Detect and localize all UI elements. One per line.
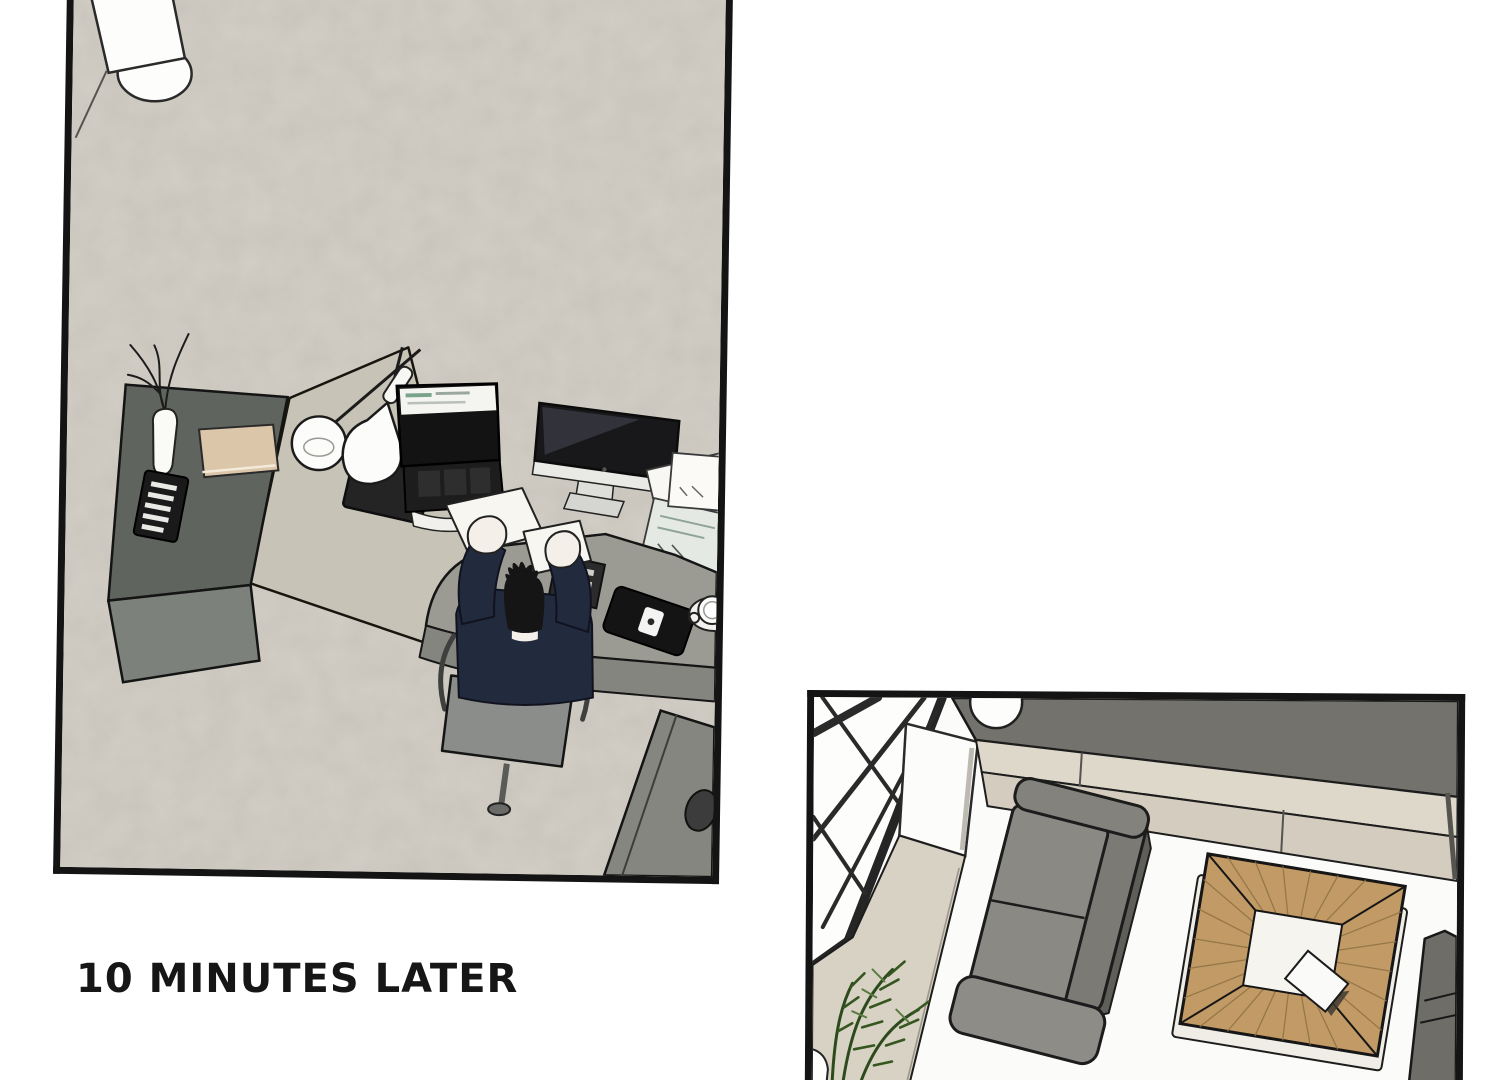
office-scene <box>60 0 726 877</box>
wall-panel <box>899 724 978 856</box>
book <box>198 423 279 478</box>
comic-page: 10 MINUTES LATER <box>0 0 1500 1080</box>
living-room-scene <box>812 697 1458 1080</box>
caption-time-skip: 10 MINUTES LATER <box>76 956 518 1002</box>
coffee-table <box>1172 853 1411 1071</box>
panel-office-overhead <box>53 0 733 884</box>
panel-living-room <box>805 690 1465 1080</box>
